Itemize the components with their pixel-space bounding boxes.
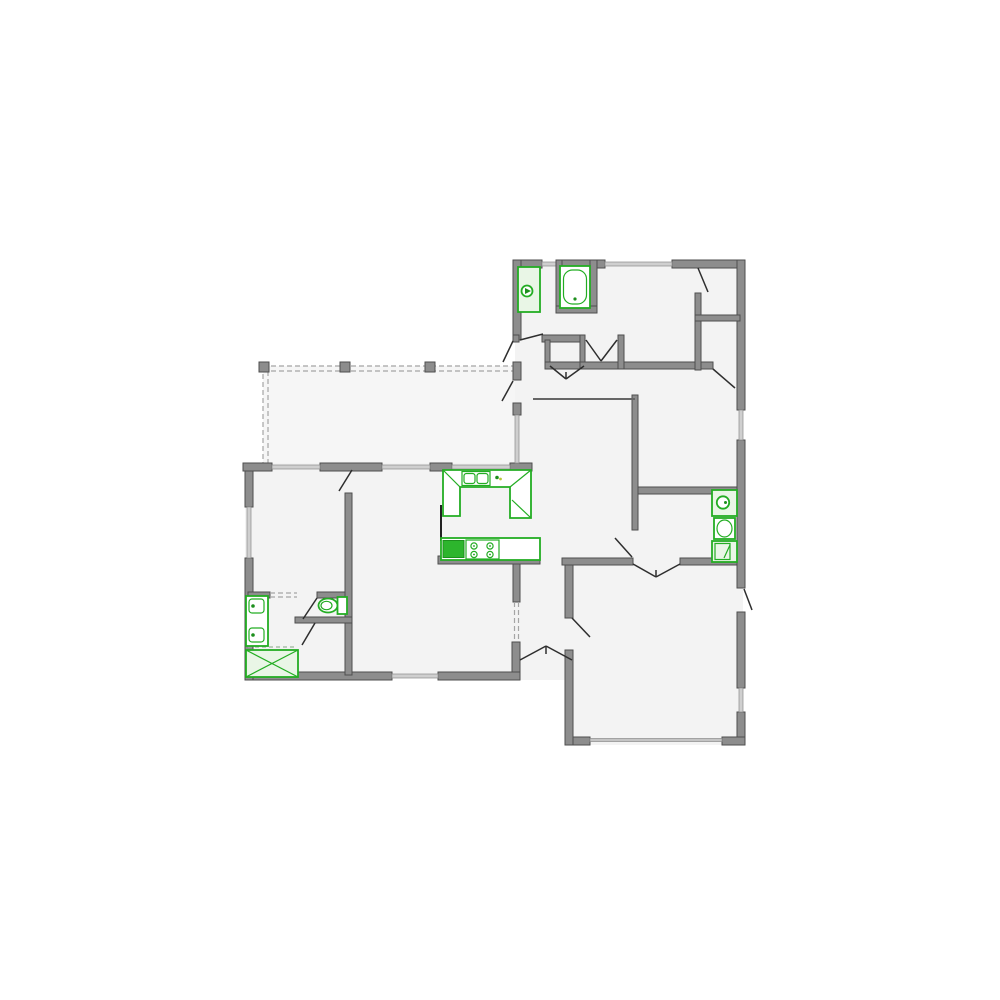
floor-plan-drawing [0, 0, 1000, 1000]
window [739, 410, 743, 440]
bathtub [560, 266, 590, 308]
toilet-tank [338, 597, 348, 614]
fixture-dot [499, 478, 502, 481]
tub-right-wall [590, 260, 597, 312]
closet-divider [695, 315, 740, 321]
floor-patio [263, 366, 515, 463]
bathtub-drain [573, 297, 576, 300]
floor-garage [565, 558, 743, 745]
patio-post [340, 362, 350, 372]
washer-cabinet [712, 541, 737, 562]
fixture-dot [495, 476, 499, 480]
window [452, 465, 510, 469]
window [247, 507, 251, 558]
patio-post [259, 362, 269, 372]
closet-wall [695, 293, 701, 370]
window [382, 465, 430, 469]
patio-post [425, 362, 435, 372]
right-bathroom-fixtures [712, 490, 737, 562]
toilet-bowl [717, 496, 729, 508]
window [515, 415, 519, 463]
garage-door [590, 739, 722, 742]
window [605, 262, 672, 266]
window [739, 688, 743, 712]
refrigerator [443, 541, 464, 558]
window [272, 465, 320, 469]
window [542, 262, 556, 266]
window [392, 674, 438, 678]
garage-side-door-leaf [744, 589, 752, 610]
hall-exterior-door-leaf [503, 341, 513, 362]
floor-plan-page [0, 0, 1000, 1000]
